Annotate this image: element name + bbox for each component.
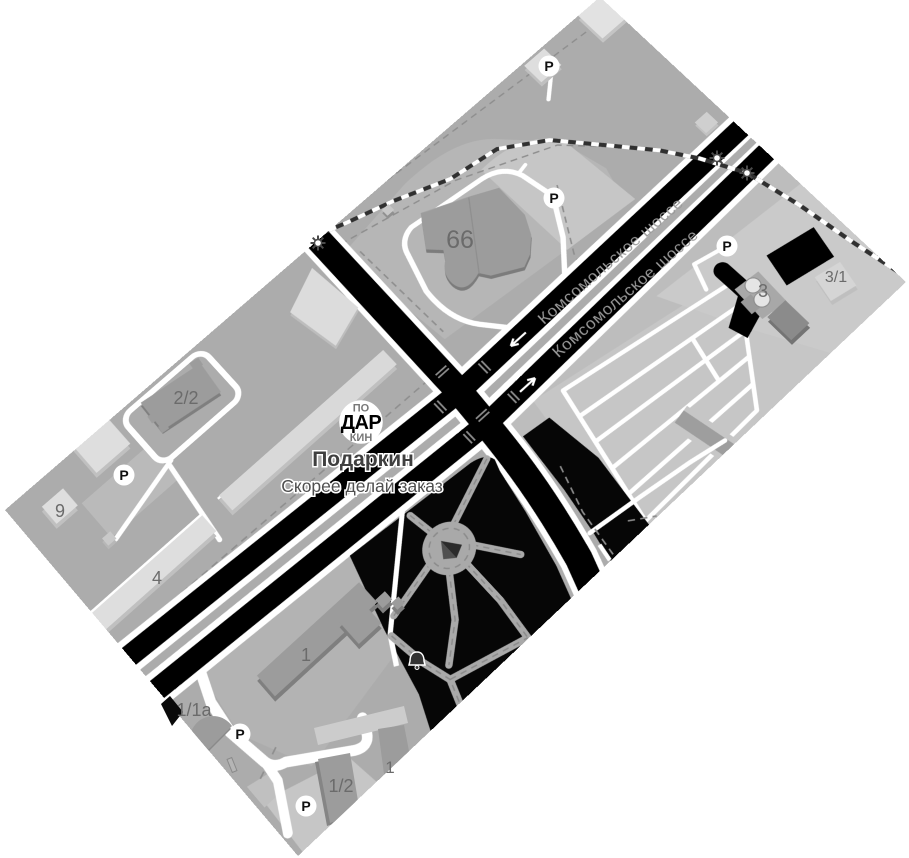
svg-text:P: P — [549, 190, 558, 206]
svg-text:1: 1 — [301, 645, 311, 665]
svg-text:P: P — [722, 238, 731, 254]
svg-text:1/1а: 1/1а — [176, 700, 212, 720]
svg-text:2/2: 2/2 — [173, 388, 198, 408]
svg-text:P: P — [235, 726, 244, 742]
svg-text:3: 3 — [758, 281, 768, 301]
svg-text:1: 1 — [385, 758, 394, 777]
svg-text:Скорее делай заказ: Скорее делай заказ — [281, 476, 443, 496]
svg-text:66: 66 — [446, 226, 474, 254]
svg-text:3/1: 3/1 — [825, 269, 847, 286]
svg-text:КИН: КИН — [350, 432, 373, 444]
svg-text:P: P — [119, 467, 128, 483]
svg-text:P: P — [301, 798, 310, 814]
svg-text:ДАР: ДАР — [341, 412, 382, 434]
svg-text:4: 4 — [152, 568, 162, 588]
svg-text:9: 9 — [55, 501, 65, 521]
svg-text:Подаркин: Подаркин — [312, 448, 414, 471]
svg-text:1/2: 1/2 — [328, 776, 353, 796]
svg-text:P: P — [544, 58, 553, 74]
